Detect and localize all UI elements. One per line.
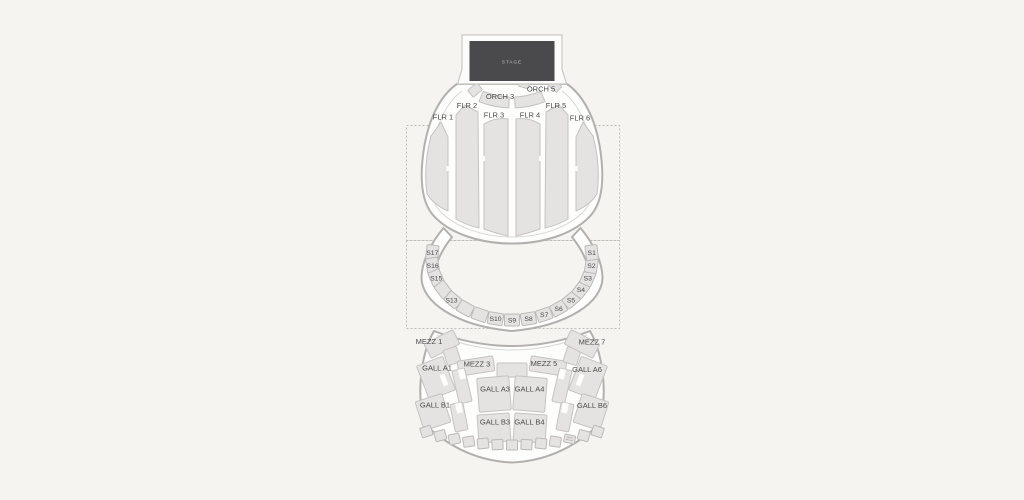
section-label: ORCH 5 — [527, 85, 555, 94]
section-gall-a3[interactable] — [477, 376, 512, 412]
section-label: MEZZ 1 — [416, 337, 443, 346]
box-label: S9 — [508, 318, 517, 325]
section-gall-a4[interactable] — [513, 376, 548, 412]
section-label: GALL A3 — [480, 385, 510, 394]
balcony-bottom-box[interactable] — [549, 436, 561, 448]
balcony-bottom-box[interactable] — [535, 438, 547, 449]
balcony-bottom-box[interactable] — [507, 440, 518, 450]
box-label: S2 — [587, 263, 596, 270]
box-label: S3 — [584, 275, 593, 282]
balcony-bottom-box[interactable] — [492, 439, 504, 450]
box-label: S17 — [426, 250, 438, 257]
aisle-tick — [447, 166, 449, 171]
section-flr-2[interactable] — [456, 105, 479, 228]
section-label: FLR 4 — [520, 111, 540, 120]
box-label: S7 — [540, 312, 549, 319]
box-label: S10 — [489, 316, 501, 323]
section-label: GALL B3 — [480, 418, 510, 427]
box-label: S6 — [554, 306, 563, 313]
section-label: FLR 5 — [546, 101, 566, 110]
aisle-tick — [576, 166, 578, 171]
balcony-bottom-box[interactable] — [420, 425, 434, 438]
balcony-bottom-box[interactable] — [521, 439, 533, 450]
section-label: GALL A4 — [515, 385, 545, 394]
box-label: S8 — [524, 316, 533, 323]
section-label: FLR 6 — [570, 114, 590, 123]
section-flr-3[interactable] — [484, 119, 508, 236]
section-label: FLR 2 — [457, 101, 477, 110]
section-label: GALL B6 — [577, 401, 607, 410]
balcony-bottom-box-striped[interactable] — [563, 434, 575, 444]
box-label: S16 — [427, 263, 439, 270]
section-flr-4[interactable] — [516, 119, 540, 236]
balcony-bottom-box[interactable] — [462, 436, 474, 448]
balcony-bottom-box[interactable] — [577, 429, 590, 442]
aisle-tick — [539, 156, 541, 161]
section-label: FLR 3 — [484, 111, 504, 120]
box-label: S4 — [577, 287, 586, 294]
box-label: S13 — [445, 297, 457, 304]
section-label: GALL A6 — [572, 365, 602, 374]
aisle-tick — [483, 156, 485, 161]
section-label: MEZZ 7 — [579, 338, 606, 347]
balcony-bottom-box[interactable] — [477, 438, 489, 449]
floor-outline — [422, 84, 603, 244]
box-label: S1 — [588, 250, 597, 257]
section-label: MEZZ 5 — [531, 359, 558, 368]
balcony-bottom-box[interactable] — [434, 429, 447, 442]
section-label: FLR 1 — [433, 113, 453, 122]
balcony-bottom-box[interactable] — [448, 433, 461, 445]
balcony-bottom-box[interactable] — [591, 425, 605, 438]
section-label: MEZZ 3 — [464, 360, 491, 369]
section-label: GALL A1 — [422, 364, 452, 373]
stage-label: STAGE — [502, 60, 522, 65]
section-label: GALL B1 — [420, 401, 450, 410]
section-flr-5[interactable] — [545, 105, 568, 228]
box-label: S15 — [430, 275, 442, 282]
section-label: ORCH 3 — [486, 92, 514, 101]
box-label: S5 — [567, 297, 576, 304]
section-mezz-center[interactable] — [497, 363, 527, 377]
seat-map: ORCH 3 ORCH 5 FLR 1 FLR 2 FLR 3 FLR 4 FL… — [0, 0, 1024, 500]
section-label: GALL B4 — [514, 418, 544, 427]
